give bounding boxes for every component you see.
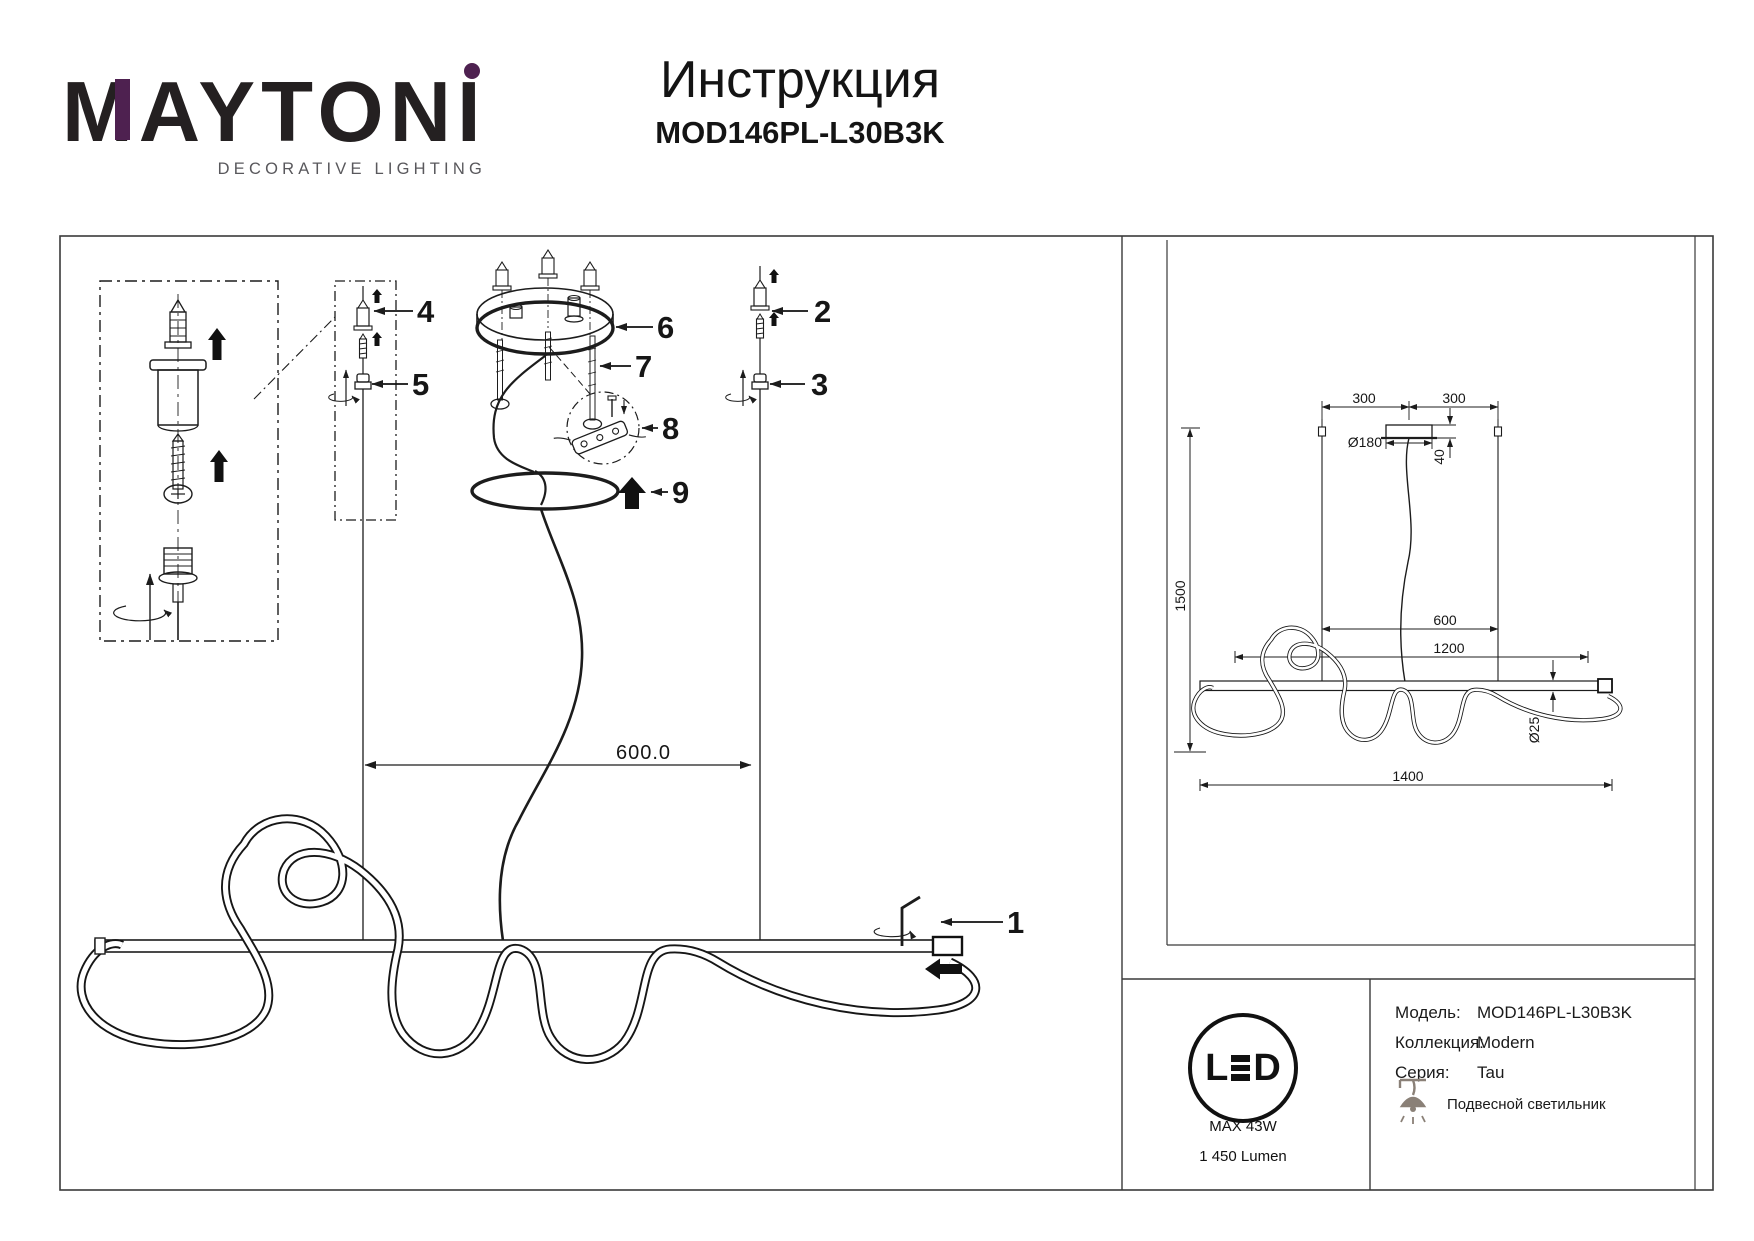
hex-key-icon: [874, 897, 920, 946]
part-label-8: 8: [662, 411, 679, 446]
dim-text-180: Ø180: [1348, 434, 1382, 450]
part-label-7: 7: [635, 349, 652, 384]
spec-value-collection: Modern: [1477, 1033, 1535, 1053]
detail-inset: [100, 281, 278, 641]
terminal-detail: [549, 347, 646, 469]
canopy-side-view: [1386, 425, 1432, 438]
instruction-sheet: MAYTONI DECORATIVE LIGHTING Инструкция M…: [0, 0, 1754, 1241]
dim-text-25: Ø25: [1526, 717, 1542, 744]
dim-text-40: 40: [1431, 449, 1447, 465]
spec-value-model: MOD146PL-L30B3K: [1477, 1003, 1632, 1023]
part-label-9: 9: [672, 475, 689, 510]
dimension-drawing: 300 300 Ø180 40 1500 600 1: [1172, 390, 1620, 791]
rotate-arrow-icon: [329, 394, 353, 401]
part-label-4: 4: [417, 294, 435, 329]
led-icon: L D: [1188, 1013, 1298, 1123]
lamp-tube: [81, 819, 976, 1060]
canopy-group: [477, 250, 613, 429]
up-arrow-icon: [372, 289, 382, 303]
max-power: MAX 43W: [1160, 1118, 1326, 1135]
part-label-2: 2: [814, 294, 831, 329]
mounting-kit-box: [335, 281, 396, 520]
part-leaders: [372, 311, 1003, 922]
dim-text-1200: 1200: [1433, 640, 1464, 656]
dim-text-600-right: 600: [1433, 612, 1457, 628]
up-arrow-icon: [208, 328, 226, 360]
up-arrow-icon: [618, 477, 646, 509]
cable-side-view: [1401, 438, 1411, 682]
dim-text-1400: 1400: [1392, 768, 1423, 784]
dim-text-600: 600.0: [616, 742, 671, 764]
dim-text-1500: 1500: [1172, 580, 1188, 611]
up-arrow-icon: [769, 312, 779, 326]
tube-connector: [933, 937, 962, 955]
rotate-arrow-icon: [114, 606, 166, 621]
spec-value-series: Tau: [1477, 1063, 1504, 1083]
bar-end-cap: [95, 938, 105, 954]
spec-label-model: Модель:: [1395, 1003, 1461, 1023]
part-label-5: 5: [412, 367, 429, 402]
rotate-arrow-icon: [726, 394, 750, 401]
spec-label-collection: Коллекция:: [1395, 1033, 1484, 1053]
led-e-bars-icon: [1231, 1055, 1250, 1081]
suspension-right: [726, 266, 779, 941]
diagram-canvas: 600.0 1 2 3 4 5 6: [0, 0, 1754, 1241]
pendant-lamp-icon: [1396, 1076, 1440, 1128]
dim-text-300-right: 300: [1442, 390, 1466, 406]
up-arrow-icon: [210, 450, 228, 482]
part-label-3: 3: [811, 367, 828, 402]
luminous-flux: 1 450 Lumen: [1160, 1148, 1326, 1165]
up-arrow-icon: [769, 269, 779, 283]
dim-text-300-left: 300: [1352, 390, 1376, 406]
part-label-6: 6: [657, 310, 674, 345]
part-label-1: 1: [1007, 905, 1024, 940]
power-cable: [493, 356, 582, 941]
fixture-type: Подвесной светильник: [1447, 1096, 1606, 1113]
up-arrow-icon: [372, 332, 382, 346]
detail-inset-leader: [254, 317, 335, 399]
